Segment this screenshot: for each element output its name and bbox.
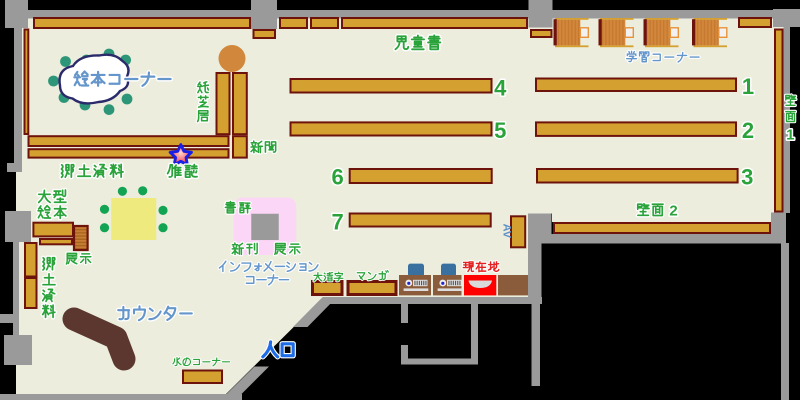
svg-text:4: 4 [494,75,507,100]
svg-text:2: 2 [742,118,754,143]
svg-text:1: 1 [742,74,754,99]
svg-text:AV: AV [501,224,513,239]
svg-text:1: 1 [786,127,794,144]
svg-text:6: 6 [331,164,343,189]
svg-text:2: 2 [669,203,677,220]
svg-text:7: 7 [331,210,343,235]
svg-text:5: 5 [494,118,506,143]
svg-text:3: 3 [741,164,753,189]
